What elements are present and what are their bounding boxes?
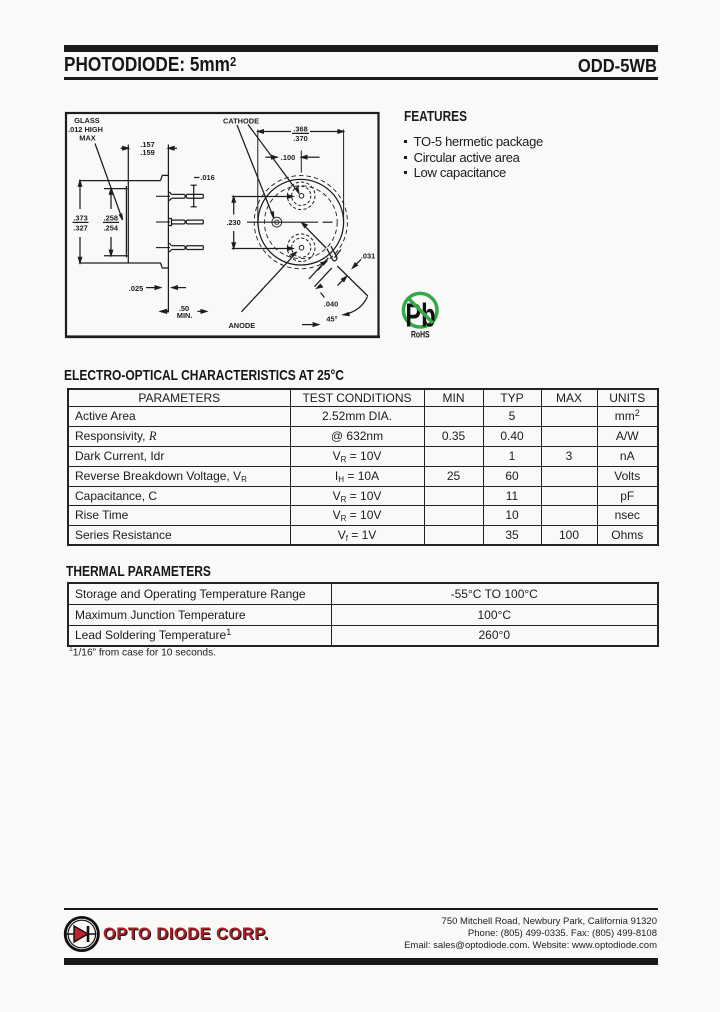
- svg-text:RoHS: RoHS: [411, 329, 430, 339]
- svg-text:.230: .230: [226, 218, 240, 227]
- svg-text:.031: .031: [361, 252, 375, 261]
- svg-text:ANODE: ANODE: [228, 321, 255, 330]
- svg-text:.016: .016: [200, 173, 214, 182]
- svg-text:.368: .368: [293, 125, 307, 134]
- svg-text:.370: .370: [293, 134, 307, 143]
- svg-text:GLASS: GLASS: [74, 116, 100, 125]
- svg-text:MAX: MAX: [79, 134, 95, 143]
- svg-text:.025: .025: [129, 284, 143, 293]
- svg-text:.373: .373: [73, 214, 87, 223]
- svg-text:CATHODE: CATHODE: [223, 117, 259, 126]
- svg-text:.327: .327: [73, 224, 87, 233]
- svg-text:.254: .254: [104, 224, 119, 233]
- svg-text:45°: 45°: [326, 315, 337, 324]
- svg-text:.100: .100: [281, 153, 295, 162]
- svg-text:MIN.: MIN.: [177, 311, 193, 320]
- svg-text:.040: .040: [324, 299, 338, 308]
- svg-text:.258: .258: [104, 214, 118, 223]
- svg-text:.159: .159: [140, 148, 154, 157]
